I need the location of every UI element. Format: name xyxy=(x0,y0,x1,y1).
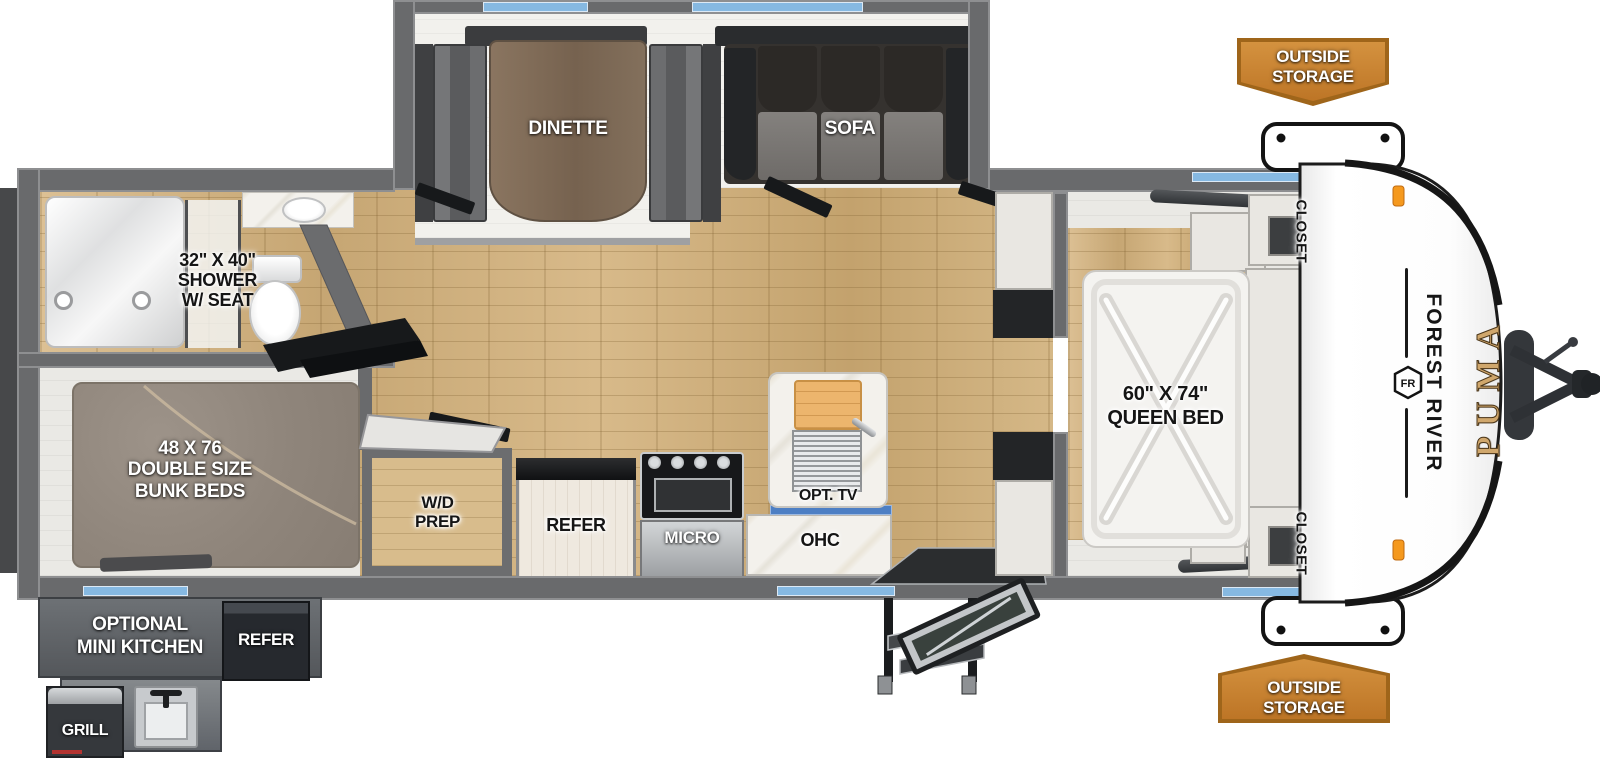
queen-bed-label: 60" X 74" QUEEN BED xyxy=(1078,382,1253,430)
label-line: 60" X 74" xyxy=(1123,383,1208,405)
shower-knob xyxy=(54,291,73,310)
kitchen-sink xyxy=(792,430,862,492)
closet-bottom-label: CLOSET xyxy=(1292,503,1309,583)
bathroom-detail-overlay xyxy=(250,190,550,460)
wall-bedroom-divider-upper xyxy=(1053,192,1068,338)
label-line: PREP xyxy=(415,512,460,531)
stove-burner xyxy=(717,456,730,469)
stove-oven-window xyxy=(654,478,732,512)
frame-bolt xyxy=(1381,134,1390,143)
outdoor-faucet-stem xyxy=(163,690,169,708)
brand-model: PUMA xyxy=(1470,266,1506,506)
hitch xyxy=(1504,330,1600,440)
frame-bolt xyxy=(1277,134,1286,143)
cabinet-upper xyxy=(995,192,1053,290)
frame-bolt xyxy=(1277,626,1286,635)
banner-line: OUTSIDE xyxy=(1276,47,1349,66)
grill-lid xyxy=(48,688,122,704)
refer-label: REFER xyxy=(521,515,631,535)
outdoor-refer-label: REFER xyxy=(224,630,308,649)
outside-storage-label: OUTSIDE STORAGE xyxy=(1237,47,1389,87)
micro-label: MICRO xyxy=(642,528,742,547)
dinette-bench-trim xyxy=(703,44,721,222)
svg-text:FR: FR xyxy=(1401,378,1416,390)
banner-line: OUTSIDE xyxy=(1267,678,1340,697)
label-line: BUNK BEDS xyxy=(135,481,245,502)
cabinet-lower xyxy=(995,480,1053,576)
frame-plate-bottom xyxy=(1263,598,1403,644)
label-line: W/ SEAT xyxy=(182,290,254,310)
stove-burner xyxy=(671,456,684,469)
ohc-label: OHC xyxy=(770,530,870,550)
dinette-label: DINETTE xyxy=(500,118,636,139)
closet-top-label: CLOSET xyxy=(1292,191,1309,271)
window xyxy=(483,2,588,12)
stove-burner xyxy=(694,456,707,469)
grill-accent xyxy=(52,750,82,754)
label-line: 32" X 40" xyxy=(179,250,255,270)
label-line: 48 X 76 xyxy=(158,438,221,459)
slideout-right-wall xyxy=(968,0,990,190)
sofa-label: SOFA xyxy=(800,118,900,139)
label-line: OPTIONAL xyxy=(92,614,188,635)
outside-storage-label: OUTSIDE STORAGE xyxy=(1218,678,1390,718)
sofa-window-rail xyxy=(715,26,989,46)
opt-tv-label: OPT. TV xyxy=(775,487,881,505)
outside-storage-banner-bottom: OUTSIDE STORAGE xyxy=(1218,654,1390,723)
label-line: QUEEN BED xyxy=(1107,407,1223,429)
label-line: W/D xyxy=(421,493,453,512)
marker-light xyxy=(1393,186,1404,206)
banner-line: STORAGE xyxy=(1272,67,1354,86)
sofa-back-cushion xyxy=(821,46,880,112)
grill-label: GRILL xyxy=(48,722,122,740)
brand-manufacturer: FOREST RIVER xyxy=(1421,263,1445,503)
outdoor-sink xyxy=(134,686,198,748)
sofa-back-cushion xyxy=(884,46,943,112)
shower-label: 32" X 40" SHOWER W/ SEAT xyxy=(130,250,305,310)
cap-accent-line xyxy=(1405,408,1408,498)
mini-kitchen-label: OPTIONAL MINI KITCHEN xyxy=(42,613,238,659)
marker-light xyxy=(1393,540,1404,560)
wall-top-left xyxy=(17,168,395,192)
cabinet-shelf-dark xyxy=(993,290,1053,338)
front-cap-assembly: FR xyxy=(1230,95,1600,661)
forest-river-logo-icon: FR xyxy=(1395,367,1421,398)
window xyxy=(83,586,188,596)
rv-floorplan: FR FOREST RIVER PUMA OUTSIDE STORAGE OUT… xyxy=(0,0,1600,761)
window xyxy=(692,2,863,12)
stove-burner xyxy=(648,456,661,469)
banner-line: STORAGE xyxy=(1263,698,1345,717)
rear-bumper xyxy=(0,188,17,573)
refrigerator-counter-top xyxy=(516,458,636,480)
cabinet-shelf-dark xyxy=(993,432,1053,480)
frame-bolt xyxy=(1381,626,1390,635)
label-line: MINI KITCHEN xyxy=(77,637,203,658)
slideout-left-wall xyxy=(393,0,415,190)
sofa-armrest xyxy=(724,48,756,180)
label-line: SHOWER xyxy=(178,270,257,290)
cap-accent-line xyxy=(1405,268,1408,358)
bunk-label: 48 X 76 DOUBLE SIZE BUNK BEDS xyxy=(95,438,285,502)
sofa-back-cushion xyxy=(758,46,817,112)
wd-prep-label: W/D PREP xyxy=(385,493,490,531)
dinette-bench xyxy=(649,44,703,222)
label-line: DOUBLE SIZE xyxy=(128,459,252,480)
wall-left xyxy=(17,168,40,600)
